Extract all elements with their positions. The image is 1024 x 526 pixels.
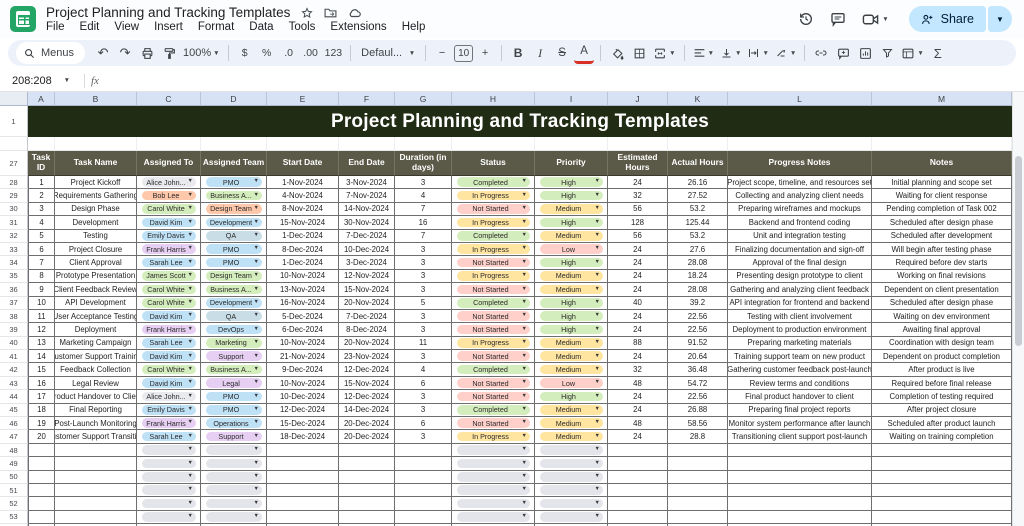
empty-cell[interactable] (395, 497, 452, 510)
text-wrap-button[interactable]: ▼ (745, 42, 770, 64)
cell-actual-hours[interactable]: 36.48 (668, 363, 728, 376)
empty-cell[interactable] (668, 497, 728, 510)
empty-cell[interactable]: ▼ (452, 497, 535, 510)
cell-assigned-to[interactable]: Sarah Lee▼ (137, 337, 201, 350)
chip-dropdown-arrow[interactable]: ▼ (188, 434, 193, 440)
cell-assigned-to[interactable]: Frank Harris▼ (137, 243, 201, 256)
assigned-team-chip[interactable]: Legal▼ (206, 378, 262, 388)
cell-start-date[interactable]: 8-Nov-2024 (267, 203, 339, 216)
empty-cell[interactable] (339, 471, 395, 484)
cell-end-date[interactable]: 30-Nov-2024 (339, 216, 395, 229)
priority-chip[interactable]: High▼ (540, 392, 603, 402)
row-header[interactable]: 41 (0, 350, 28, 363)
status-chip[interactable]: Completed▼ (457, 298, 530, 308)
cell-notes[interactable]: Scheduled after design phase (872, 297, 1012, 310)
row-header[interactable]: 43 (0, 377, 28, 390)
empty-cell[interactable]: ▼ (201, 444, 267, 457)
assigned-to-chip[interactable]: Alice John...▼ (142, 177, 196, 187)
empty-cell[interactable] (872, 471, 1012, 484)
cell-task-id[interactable]: 2 (28, 189, 55, 202)
status-chip[interactable]: Not Started▼ (457, 311, 530, 321)
comment-history-icon[interactable] (830, 11, 846, 27)
cell-estimated-hours[interactable]: 56 (608, 203, 668, 216)
chip-dropdown-arrow[interactable]: ▼ (595, 501, 600, 507)
font-size-input[interactable]: 10 (454, 45, 473, 62)
cell-estimated-hours[interactable]: 24 (608, 243, 668, 256)
cell-status[interactable]: Not Started▼ (452, 310, 535, 323)
cell-estimated-hours[interactable]: 24 (608, 176, 668, 189)
priority-chip[interactable]: Medium▼ (540, 231, 603, 241)
cell-start-date[interactable]: 1-Nov-2024 (267, 176, 339, 189)
chip-dropdown-arrow[interactable]: ▼ (254, 233, 259, 239)
empty-cell[interactable] (55, 444, 137, 457)
horizontal-align-button[interactable]: ▼ (691, 42, 716, 64)
chip-dropdown-arrow[interactable]: ▼ (522, 260, 527, 266)
chip-dropdown-arrow[interactable]: ▼ (595, 327, 600, 333)
empty-cell[interactable]: ▼ (201, 457, 267, 470)
cell-progress-notes[interactable]: Project scope, timeline, and resources s… (728, 176, 872, 189)
empty-cell[interactable]: ▼ (137, 497, 201, 510)
empty-cell[interactable]: ▼ (137, 484, 201, 497)
chip-dropdown-arrow[interactable]: ▼ (595, 300, 600, 306)
table-header-cell[interactable]: Task ID (28, 151, 55, 176)
chip-dropdown-arrow[interactable]: ▼ (595, 340, 600, 346)
empty-cell[interactable] (339, 484, 395, 497)
cell-task-name[interactable]: Prototype Presentation (55, 270, 137, 283)
cell-assigned-team[interactable]: Development▼ (201, 216, 267, 229)
cell-actual-hours[interactable]: 53.2 (668, 230, 728, 243)
chip-dropdown-arrow[interactable]: ▼ (188, 394, 193, 400)
column-header-C[interactable]: C (137, 92, 201, 106)
cell-priority[interactable]: Medium▼ (535, 337, 608, 350)
table-header-cell[interactable]: Start Date (267, 151, 339, 176)
cell-status[interactable]: Not Started▼ (452, 377, 535, 390)
cell-estimated-hours[interactable]: 128 (608, 216, 668, 229)
cell-task-name[interactable]: Project Kickoff (55, 176, 137, 189)
doc-title[interactable]: Project Planning and Tracking Templates (46, 5, 290, 20)
cell-priority[interactable]: High▼ (535, 297, 608, 310)
cell-estimated-hours[interactable]: 32 (608, 363, 668, 376)
assigned-to-chip[interactable]: Carol White▼ (142, 365, 196, 375)
assigned-team-chip[interactable]: PMO▼ (206, 177, 262, 187)
empty-cell[interactable] (728, 484, 872, 497)
empty-cell[interactable] (395, 471, 452, 484)
cell-status[interactable]: Completed▼ (452, 176, 535, 189)
cell-notes[interactable]: Scheduled after product launch (872, 417, 1012, 430)
empty-cell[interactable]: ▼ (535, 471, 608, 484)
empty-cell[interactable] (668, 137, 728, 151)
insert-comment-button[interactable] (833, 42, 853, 64)
column-header-G[interactable]: G (395, 92, 452, 106)
cell-progress-notes[interactable]: Preparing marketing materials (728, 337, 872, 350)
cell-priority[interactable]: High▼ (535, 323, 608, 336)
cell-end-date[interactable]: 8-Dec-2024 (339, 323, 395, 336)
cell-estimated-hours[interactable]: 24 (608, 350, 668, 363)
empty-cell[interactable] (55, 457, 137, 470)
cell-task-id[interactable]: 3 (28, 203, 55, 216)
cell-assigned-to[interactable]: Sarah Lee▼ (137, 256, 201, 269)
empty-cell[interactable] (608, 497, 668, 510)
cell-assigned-team[interactable]: QA▼ (201, 310, 267, 323)
cell-actual-hours[interactable]: 20.64 (668, 350, 728, 363)
empty-cell[interactable] (55, 471, 137, 484)
cell-estimated-hours[interactable]: 88 (608, 337, 668, 350)
chip-dropdown-arrow[interactable]: ▼ (522, 420, 527, 426)
chip-dropdown-arrow[interactable]: ▼ (522, 487, 527, 493)
empty-cell[interactable] (608, 137, 668, 151)
empty-dropdown-chip[interactable]: ▼ (540, 459, 603, 469)
chip-dropdown-arrow[interactable]: ▼ (522, 327, 527, 333)
cell-start-date[interactable]: 1-Dec-2024 (267, 256, 339, 269)
chip-dropdown-arrow[interactable]: ▼ (595, 407, 600, 413)
empty-cell[interactable] (339, 511, 395, 524)
cell-assigned-team[interactable]: Development▼ (201, 297, 267, 310)
chip-dropdown-arrow[interactable]: ▼ (522, 434, 527, 440)
table-header-cell[interactable]: Assigned Team (201, 151, 267, 176)
empty-dropdown-chip[interactable]: ▼ (457, 512, 530, 522)
cell-start-date[interactable]: 13-Nov-2024 (267, 283, 339, 296)
priority-chip[interactable]: High▼ (540, 191, 603, 201)
assigned-to-chip[interactable]: Frank Harris▼ (142, 418, 196, 428)
cell-task-name[interactable]: Product Handover to Client (55, 390, 137, 403)
cell-assigned-to[interactable]: David Kim▼ (137, 350, 201, 363)
cell-notes[interactable]: Initial planning and scope set (872, 176, 1012, 189)
cell-end-date[interactable]: 20-Nov-2024 (339, 297, 395, 310)
format-currency-button[interactable]: $ (235, 42, 255, 64)
status-chip[interactable]: In Progress▼ (457, 191, 530, 201)
column-header-D[interactable]: D (201, 92, 267, 106)
assigned-team-chip[interactable]: DevOps▼ (206, 325, 262, 335)
empty-cell[interactable] (872, 137, 1012, 151)
chip-dropdown-arrow[interactable]: ▼ (595, 487, 600, 493)
cell-status[interactable]: Not Started▼ (452, 203, 535, 216)
cell-estimated-hours[interactable]: 40 (608, 297, 668, 310)
row-header[interactable]: 31 (0, 216, 28, 229)
table-header-cell[interactable]: Notes (872, 151, 1012, 176)
cell-start-date[interactable]: 12-Dec-2024 (267, 404, 339, 417)
cell-task-name[interactable]: Design Phase (55, 203, 137, 216)
empty-cell[interactable] (28, 137, 55, 151)
chip-dropdown-arrow[interactable]: ▼ (188, 407, 193, 413)
column-header-I[interactable]: I (535, 92, 608, 106)
cell-priority[interactable]: Medium▼ (535, 230, 608, 243)
status-chip[interactable]: Not Started▼ (457, 325, 530, 335)
bold-button[interactable]: B (508, 42, 528, 64)
sheets-logo[interactable] (10, 6, 36, 32)
cell-assigned-to[interactable]: Carol White▼ (137, 203, 201, 216)
cell-progress-notes[interactable]: API integration for frontend and backend (728, 297, 872, 310)
cell-actual-hours[interactable]: 27.6 (668, 243, 728, 256)
priority-chip[interactable]: Medium▼ (540, 365, 603, 375)
assigned-to-chip[interactable]: Carol White▼ (142, 204, 196, 214)
cell-status[interactable]: In Progress▼ (452, 337, 535, 350)
cell-duration[interactable]: 11 (395, 337, 452, 350)
assigned-team-chip[interactable]: QA▼ (206, 311, 262, 321)
merge-cells-button[interactable]: ▼ (651, 42, 677, 64)
row-header[interactable]: 52 (0, 497, 28, 510)
table-header-cell[interactable]: Task Name (55, 151, 137, 176)
cell-task-id[interactable]: 12 (28, 323, 55, 336)
cell-assigned-to[interactable]: David Kim▼ (137, 310, 201, 323)
cell-assigned-to[interactable]: James Scott▼ (137, 270, 201, 283)
cell-assigned-to[interactable]: Alice John...▼ (137, 176, 201, 189)
paint-format-button[interactable] (159, 42, 179, 64)
empty-cell[interactable] (872, 484, 1012, 497)
empty-dropdown-chip[interactable]: ▼ (206, 472, 262, 482)
empty-cell[interactable] (339, 137, 395, 151)
cell-priority[interactable]: High▼ (535, 189, 608, 202)
cell-start-date[interactable]: 10-Nov-2024 (267, 377, 339, 390)
empty-cell[interactable] (668, 484, 728, 497)
assigned-to-chip[interactable]: David Kim▼ (142, 218, 196, 228)
cell-notes[interactable]: Scheduled after design phase (872, 216, 1012, 229)
chip-dropdown-arrow[interactable]: ▼ (254, 461, 259, 467)
empty-dropdown-chip[interactable]: ▼ (540, 472, 603, 482)
chip-dropdown-arrow[interactable]: ▼ (595, 514, 600, 520)
empty-cell[interactable] (728, 457, 872, 470)
chip-dropdown-arrow[interactable]: ▼ (188, 367, 193, 373)
chip-dropdown-arrow[interactable]: ▼ (254, 287, 259, 293)
menu-item-help[interactable]: Help (402, 21, 426, 33)
chip-dropdown-arrow[interactable]: ▼ (254, 447, 259, 453)
empty-cell[interactable]: ▼ (201, 471, 267, 484)
share-button[interactable]: Share (909, 6, 986, 32)
empty-cell[interactable] (55, 484, 137, 497)
row-header[interactable]: 48 (0, 444, 28, 457)
cell-notes[interactable]: Coordination with design team (872, 337, 1012, 350)
cell-progress-notes[interactable]: Final product handover to client (728, 390, 872, 403)
empty-cell[interactable] (395, 137, 452, 151)
chip-dropdown-arrow[interactable]: ▼ (188, 501, 193, 507)
chip-dropdown-arrow[interactable]: ▼ (188, 206, 193, 212)
assigned-to-chip[interactable]: James Scott▼ (142, 271, 196, 281)
cell-duration[interactable]: 3 (395, 390, 452, 403)
table-header-cell[interactable]: Progress Notes (728, 151, 872, 176)
priority-chip[interactable]: Medium▼ (540, 204, 603, 214)
cell-priority[interactable]: Medium▼ (535, 363, 608, 376)
cell-priority[interactable]: High▼ (535, 256, 608, 269)
empty-cell[interactable] (728, 137, 872, 151)
assigned-team-chip[interactable]: Development▼ (206, 298, 262, 308)
empty-cell[interactable] (728, 497, 872, 510)
empty-cell[interactable] (608, 457, 668, 470)
empty-cell[interactable]: ▼ (452, 444, 535, 457)
chip-dropdown-arrow[interactable]: ▼ (188, 273, 193, 279)
priority-chip[interactable]: Medium▼ (540, 285, 603, 295)
assigned-team-chip[interactable]: Support▼ (206, 432, 262, 442)
table-views-button[interactable]: ▼ (899, 42, 925, 64)
row-header[interactable] (0, 137, 28, 151)
cell-notes[interactable]: Waiting on training completion (872, 430, 1012, 443)
text-color-button[interactable]: A (574, 42, 594, 64)
cell-actual-hours[interactable]: 125.44 (668, 216, 728, 229)
meet-dropdown-caret[interactable]: ▼ (882, 16, 888, 23)
cell-notes[interactable]: Awaiting final approval (872, 323, 1012, 336)
row-header[interactable]: 53 (0, 511, 28, 524)
cell-end-date[interactable]: 14-Dec-2024 (339, 404, 395, 417)
chip-dropdown-arrow[interactable]: ▼ (595, 313, 600, 319)
cell-notes[interactable]: Required before final release (872, 377, 1012, 390)
column-header-B[interactable]: B (55, 92, 137, 106)
column-header-L[interactable]: L (728, 92, 872, 106)
column-header-A[interactable]: A (28, 92, 55, 106)
menu-item-edit[interactable]: Edit (80, 21, 100, 33)
cell-progress-notes[interactable]: Finalizing documentation and sign-off (728, 243, 872, 256)
cell-progress-notes[interactable]: Deployment to production environment (728, 323, 872, 336)
cell-status[interactable]: In Progress▼ (452, 216, 535, 229)
cell-actual-hours[interactable]: 91.52 (668, 337, 728, 350)
cell-duration[interactable]: 16 (395, 216, 452, 229)
priority-chip[interactable]: High▼ (540, 325, 603, 335)
share-dropdown[interactable]: ▼ (988, 6, 1012, 32)
empty-cell[interactable]: ▼ (535, 484, 608, 497)
cell-priority[interactable]: Medium▼ (535, 203, 608, 216)
assigned-team-chip[interactable]: Development▼ (206, 218, 262, 228)
empty-cell[interactable] (28, 471, 55, 484)
status-chip[interactable]: In Progress▼ (457, 244, 530, 254)
cell-estimated-hours[interactable]: 32 (608, 189, 668, 202)
table-header-cell[interactable]: Estimated Hours (608, 151, 668, 176)
priority-chip[interactable]: High▼ (540, 218, 603, 228)
redo-button[interactable]: ↷ (115, 42, 135, 64)
cell-end-date[interactable]: 15-Nov-2024 (339, 377, 395, 390)
chip-dropdown-arrow[interactable]: ▼ (595, 179, 600, 185)
empty-cell[interactable] (452, 137, 535, 151)
chip-dropdown-arrow[interactable]: ▼ (188, 447, 193, 453)
cell-duration[interactable]: 3 (395, 270, 452, 283)
chip-dropdown-arrow[interactable]: ▼ (254, 246, 259, 252)
row-header[interactable]: 1 (0, 106, 28, 137)
chip-dropdown-arrow[interactable]: ▼ (595, 474, 600, 480)
cell-end-date[interactable]: 15-Nov-2024 (339, 283, 395, 296)
assigned-team-chip[interactable]: QA▼ (206, 231, 262, 241)
cell-start-date[interactable]: 10-Dec-2024 (267, 390, 339, 403)
cell-status[interactable]: In Progress▼ (452, 270, 535, 283)
empty-dropdown-chip[interactable]: ▼ (142, 485, 196, 495)
empty-dropdown-chip[interactable]: ▼ (457, 445, 530, 455)
empty-cell[interactable]: ▼ (535, 511, 608, 524)
chip-dropdown-arrow[interactable]: ▼ (595, 193, 600, 199)
empty-cell[interactable] (28, 457, 55, 470)
chip-dropdown-arrow[interactable]: ▼ (522, 447, 527, 453)
chip-dropdown-arrow[interactable]: ▼ (254, 273, 259, 279)
empty-cell[interactable]: ▼ (137, 471, 201, 484)
status-chip[interactable]: Not Started▼ (457, 285, 530, 295)
cell-status[interactable]: Not Started▼ (452, 283, 535, 296)
cell-assigned-to[interactable]: David Kim▼ (137, 216, 201, 229)
chip-dropdown-arrow[interactable]: ▼ (595, 394, 600, 400)
empty-dropdown-chip[interactable]: ▼ (540, 445, 603, 455)
empty-cell[interactable] (872, 497, 1012, 510)
empty-dropdown-chip[interactable]: ▼ (142, 472, 196, 482)
empty-cell[interactable] (728, 511, 872, 524)
cell-notes[interactable]: After product is live (872, 363, 1012, 376)
row-header[interactable]: 42 (0, 363, 28, 376)
cell-actual-hours[interactable]: 18.24 (668, 270, 728, 283)
cell-duration[interactable]: 5 (395, 297, 452, 310)
cell-actual-hours[interactable]: 22.56 (668, 390, 728, 403)
empty-dropdown-chip[interactable]: ▼ (457, 499, 530, 509)
empty-dropdown-chip[interactable]: ▼ (142, 459, 196, 469)
chip-dropdown-arrow[interactable]: ▼ (254, 300, 259, 306)
chip-dropdown-arrow[interactable]: ▼ (188, 246, 193, 252)
star-icon[interactable] (301, 7, 313, 19)
cell-duration[interactable]: 4 (395, 363, 452, 376)
assigned-to-chip[interactable]: Carol White▼ (142, 285, 196, 295)
assigned-team-chip[interactable]: Business A...▼ (206, 285, 262, 295)
row-header[interactable]: 32 (0, 230, 28, 243)
chip-dropdown-arrow[interactable]: ▼ (254, 354, 259, 360)
assigned-to-chip[interactable]: Frank Harris▼ (142, 244, 196, 254)
cell-estimated-hours[interactable]: 24 (608, 404, 668, 417)
cell-status[interactable]: Not Started▼ (452, 417, 535, 430)
empty-cell[interactable] (395, 484, 452, 497)
chip-dropdown-arrow[interactable]: ▼ (522, 461, 527, 467)
cell-notes[interactable]: Scheduled after development (872, 230, 1012, 243)
cell-assigned-team[interactable]: Marketing▼ (201, 337, 267, 350)
table-header-cell[interactable]: Status (452, 151, 535, 176)
chip-dropdown-arrow[interactable]: ▼ (254, 220, 259, 226)
empty-dropdown-chip[interactable]: ▼ (206, 485, 262, 495)
chip-dropdown-arrow[interactable]: ▼ (522, 300, 527, 306)
chip-dropdown-arrow[interactable]: ▼ (254, 434, 259, 440)
status-chip[interactable]: Completed▼ (457, 365, 530, 375)
assigned-to-chip[interactable]: David Kim▼ (142, 378, 196, 388)
cell-priority[interactable]: High▼ (535, 216, 608, 229)
cell-priority[interactable]: Medium▼ (535, 350, 608, 363)
cell-duration[interactable]: 4 (395, 189, 452, 202)
cell-priority[interactable]: High▼ (535, 176, 608, 189)
empty-cell[interactable]: ▼ (452, 471, 535, 484)
cell-task-name[interactable]: Project Closure (55, 243, 137, 256)
row-header[interactable]: 29 (0, 189, 28, 202)
cell-status[interactable]: Completed▼ (452, 297, 535, 310)
scrollbar-thumb[interactable] (1015, 156, 1022, 346)
cell-duration[interactable]: 3 (395, 283, 452, 296)
font-select[interactable]: Defaul...▼ (357, 42, 419, 64)
cell-end-date[interactable]: 20-Nov-2024 (339, 337, 395, 350)
empty-dropdown-chip[interactable]: ▼ (142, 445, 196, 455)
cell-priority[interactable]: Medium▼ (535, 404, 608, 417)
cell-task-name[interactable]: Customer Support Training (55, 350, 137, 363)
cell-task-name[interactable]: Client Feedback Review (55, 283, 137, 296)
cell-actual-hours[interactable]: 28.8 (668, 430, 728, 443)
more-formats-button[interactable]: 123 (323, 42, 345, 64)
menu-item-data[interactable]: Data (249, 21, 273, 33)
cell-assigned-team[interactable]: Operations▼ (201, 417, 267, 430)
cell-task-id[interactable]: 10 (28, 297, 55, 310)
cell-status[interactable]: In Progress▼ (452, 243, 535, 256)
cell-end-date[interactable]: 3-Dec-2024 (339, 256, 395, 269)
status-chip[interactable]: Not Started▼ (457, 418, 530, 428)
chip-dropdown-arrow[interactable]: ▼ (188, 380, 193, 386)
chip-dropdown-arrow[interactable]: ▼ (595, 220, 600, 226)
cell-task-id[interactable]: 9 (28, 283, 55, 296)
empty-cell[interactable] (668, 444, 728, 457)
move-folder-icon[interactable] (324, 7, 337, 18)
cell-assigned-to[interactable]: Bob Lee▼ (137, 189, 201, 202)
assigned-team-chip[interactable]: PMO▼ (206, 392, 262, 402)
empty-cell[interactable] (55, 137, 137, 151)
cell-progress-notes[interactable]: Approval of the final design (728, 256, 872, 269)
cell-start-date[interactable]: 10-Nov-2024 (267, 337, 339, 350)
empty-dropdown-chip[interactable]: ▼ (142, 499, 196, 509)
row-header[interactable]: 47 (0, 430, 28, 443)
assigned-to-chip[interactable]: Sarah Lee▼ (142, 338, 196, 348)
cell-actual-hours[interactable]: 28.08 (668, 283, 728, 296)
table-header-cell[interactable]: Actual Hours (668, 151, 728, 176)
cell-notes[interactable]: Dependent on client presentation (872, 283, 1012, 296)
